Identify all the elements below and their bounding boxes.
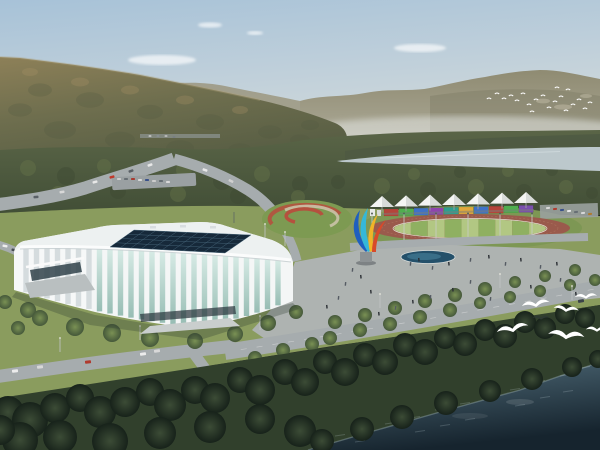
flagpole-top bbox=[371, 213, 373, 215]
forest-clump bbox=[374, 178, 390, 194]
mountain-highlight bbox=[232, 106, 248, 114]
field-stripe bbox=[478, 217, 495, 239]
tree bbox=[412, 339, 438, 365]
car bbox=[131, 178, 135, 180]
tree bbox=[575, 308, 595, 328]
tree bbox=[200, 383, 230, 413]
car bbox=[152, 180, 156, 182]
car bbox=[546, 207, 550, 209]
grandstand-panel bbox=[444, 207, 458, 214]
sports-park-scene bbox=[0, 0, 600, 450]
forest-clump bbox=[408, 168, 420, 180]
cloud bbox=[247, 31, 263, 35]
mountain-shade bbox=[301, 120, 319, 130]
tree bbox=[32, 310, 48, 326]
field-stripe bbox=[445, 217, 462, 239]
mountain-highlight bbox=[22, 68, 38, 76]
car bbox=[149, 135, 152, 137]
lamp bbox=[59, 337, 61, 339]
tree bbox=[434, 391, 458, 415]
tree bbox=[291, 368, 319, 396]
grandstand-panel bbox=[504, 206, 518, 213]
tree bbox=[453, 332, 477, 356]
tree bbox=[569, 264, 581, 276]
tree bbox=[534, 317, 556, 339]
forest-clump bbox=[292, 176, 308, 192]
flagpole-top bbox=[531, 213, 533, 215]
tree bbox=[245, 375, 275, 405]
tree bbox=[353, 323, 367, 337]
glass-bay bbox=[97, 249, 102, 311]
car bbox=[145, 179, 149, 181]
scree-patch bbox=[554, 104, 572, 109]
lamp bbox=[571, 285, 573, 287]
forest-clump bbox=[254, 166, 270, 182]
glass-bay bbox=[275, 261, 280, 306]
tree bbox=[245, 404, 275, 434]
lamp bbox=[284, 231, 286, 233]
tree bbox=[110, 387, 140, 417]
mountain-shade bbox=[196, 114, 224, 129]
flagpole-top bbox=[403, 213, 405, 215]
forest-clump bbox=[454, 166, 466, 178]
tree bbox=[509, 276, 521, 288]
grandstand-panel bbox=[474, 207, 488, 214]
flagpole-top bbox=[467, 213, 469, 215]
mountain-shade bbox=[137, 105, 163, 119]
car bbox=[574, 211, 578, 213]
tree bbox=[331, 358, 359, 386]
cloud bbox=[198, 22, 222, 27]
tree bbox=[564, 279, 576, 291]
tree bbox=[328, 315, 342, 329]
forest-clump bbox=[97, 159, 111, 173]
tree bbox=[478, 282, 492, 296]
forest-clump bbox=[170, 186, 186, 202]
glass-bay bbox=[265, 260, 270, 310]
tree bbox=[504, 291, 516, 303]
grandstand-panel bbox=[489, 206, 503, 213]
tree bbox=[448, 288, 462, 302]
car bbox=[33, 195, 38, 198]
flower-roundabout bbox=[262, 200, 352, 238]
forest-clump bbox=[559, 180, 573, 194]
glass-bay bbox=[128, 251, 133, 318]
grandstand-panel bbox=[459, 207, 473, 214]
car bbox=[138, 179, 142, 181]
glass-bay bbox=[118, 250, 123, 316]
tree bbox=[474, 319, 496, 341]
mountain-shade bbox=[8, 103, 32, 116]
tree bbox=[413, 310, 427, 324]
car bbox=[12, 369, 18, 373]
tree bbox=[144, 417, 176, 449]
field-stripe bbox=[462, 217, 479, 239]
flagpole-top bbox=[499, 213, 501, 215]
car bbox=[37, 365, 43, 369]
car bbox=[588, 213, 592, 215]
mountain-shade bbox=[76, 92, 104, 107]
tree bbox=[390, 405, 414, 429]
tree bbox=[194, 411, 226, 443]
forest-clump bbox=[20, 160, 36, 176]
mountain-highlight bbox=[71, 78, 89, 87]
tree bbox=[514, 311, 536, 333]
scree-patch bbox=[580, 94, 592, 98]
glass-bay bbox=[107, 250, 112, 314]
car bbox=[165, 135, 168, 137]
tree bbox=[372, 349, 398, 375]
tree bbox=[40, 393, 70, 423]
mountain-highlight bbox=[176, 96, 194, 105]
forest-clump bbox=[586, 187, 598, 199]
grandstand-panel bbox=[414, 208, 428, 215]
glass-bay bbox=[244, 258, 249, 316]
glass-bay bbox=[139, 251, 144, 319]
forest-clump bbox=[57, 167, 75, 185]
mountain-highlight bbox=[121, 86, 139, 95]
tree bbox=[11, 321, 25, 335]
car bbox=[157, 135, 160, 137]
tree bbox=[358, 308, 372, 322]
tree bbox=[479, 380, 501, 402]
tree bbox=[474, 297, 486, 309]
tree bbox=[539, 270, 551, 282]
tree bbox=[323, 331, 337, 345]
car bbox=[567, 210, 571, 212]
rendered-photo: Aerial rendering of a lakeside sports pa… bbox=[0, 0, 600, 450]
tree bbox=[434, 327, 456, 349]
lamp bbox=[379, 293, 381, 295]
tree bbox=[383, 317, 397, 331]
lamp bbox=[499, 273, 501, 275]
car bbox=[124, 178, 128, 180]
forest-clump bbox=[420, 182, 436, 198]
mountain-shade bbox=[105, 132, 135, 149]
fountain-pool bbox=[401, 251, 455, 264]
tree bbox=[521, 368, 543, 390]
mountain-shade bbox=[44, 121, 76, 139]
glass-bay bbox=[149, 252, 154, 322]
tree bbox=[154, 389, 186, 421]
tree bbox=[443, 303, 457, 317]
mountain-shade bbox=[258, 125, 282, 138]
tree bbox=[562, 357, 582, 377]
car bbox=[581, 212, 585, 214]
flagpole-top bbox=[435, 213, 437, 215]
grandstand-panel bbox=[384, 209, 398, 216]
forest-clump bbox=[331, 175, 345, 189]
car bbox=[173, 136, 176, 138]
mountain-shade bbox=[28, 83, 52, 96]
glass-bay bbox=[254, 259, 259, 313]
forest-clump bbox=[468, 179, 484, 195]
lamp bbox=[264, 223, 266, 225]
car bbox=[159, 180, 163, 182]
car bbox=[553, 208, 557, 210]
tree bbox=[534, 285, 546, 297]
car bbox=[117, 178, 121, 180]
tree bbox=[350, 417, 374, 441]
car bbox=[166, 181, 170, 183]
cloud bbox=[128, 55, 196, 65]
cloud bbox=[394, 44, 446, 52]
car bbox=[560, 209, 564, 211]
